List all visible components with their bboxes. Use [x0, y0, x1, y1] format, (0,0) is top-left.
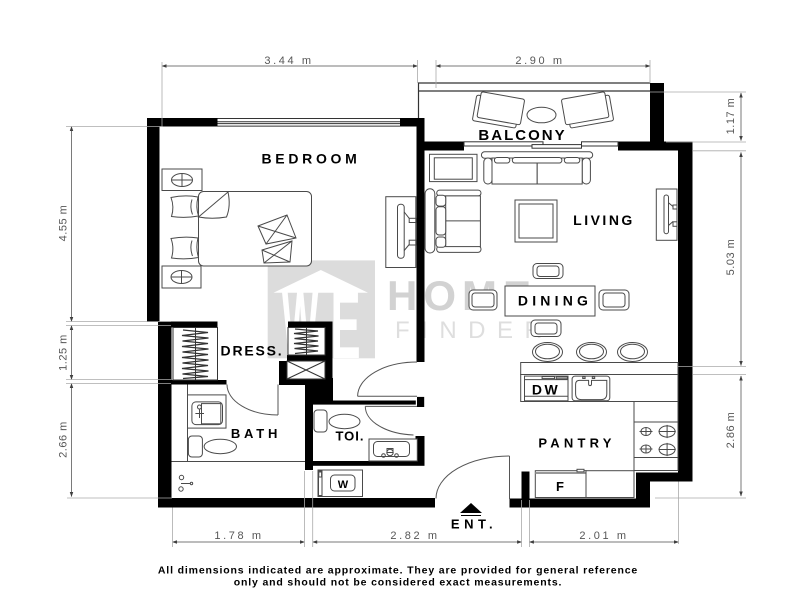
svg-text:F: F: [556, 479, 564, 494]
svg-text:only and should not be conside: only and should not be considered exact …: [234, 577, 563, 589]
svg-text:1.25 m: 1.25 m: [58, 334, 70, 371]
svg-text:2.82 m: 2.82 m: [390, 530, 439, 542]
svg-text:1.78 m: 1.78 m: [214, 530, 263, 542]
svg-text:LIVING: LIVING: [573, 212, 635, 228]
svg-text:2.66 m: 2.66 m: [58, 421, 70, 458]
svg-text:BATH: BATH: [231, 426, 281, 441]
svg-text:3.44 m: 3.44 m: [264, 55, 313, 67]
svg-text:4.55 m: 4.55 m: [58, 205, 70, 242]
svg-text:2.01 m: 2.01 m: [579, 530, 628, 542]
svg-text:E: E: [331, 271, 361, 379]
svg-text:DRESS.: DRESS.: [221, 343, 284, 359]
svg-text:BEDROOM: BEDROOM: [261, 151, 360, 167]
svg-text:TOI.: TOI.: [335, 429, 364, 444]
svg-text:5.03 m: 5.03 m: [725, 239, 737, 276]
svg-text:DINING: DINING: [518, 293, 592, 309]
svg-text:ENT.: ENT.: [451, 517, 497, 532]
svg-text:1.17 m: 1.17 m: [725, 98, 737, 135]
svg-text:PANTRY: PANTRY: [538, 436, 615, 451]
svg-text:2.86 m: 2.86 m: [725, 412, 737, 449]
svg-text:2.90 m: 2.90 m: [515, 55, 564, 67]
svg-text:DW: DW: [532, 382, 560, 398]
svg-text:All dimensions indicated are a: All dimensions indicated are approximate…: [158, 565, 638, 577]
svg-text:BALCONY: BALCONY: [478, 127, 566, 144]
svg-text:W: W: [338, 479, 349, 491]
